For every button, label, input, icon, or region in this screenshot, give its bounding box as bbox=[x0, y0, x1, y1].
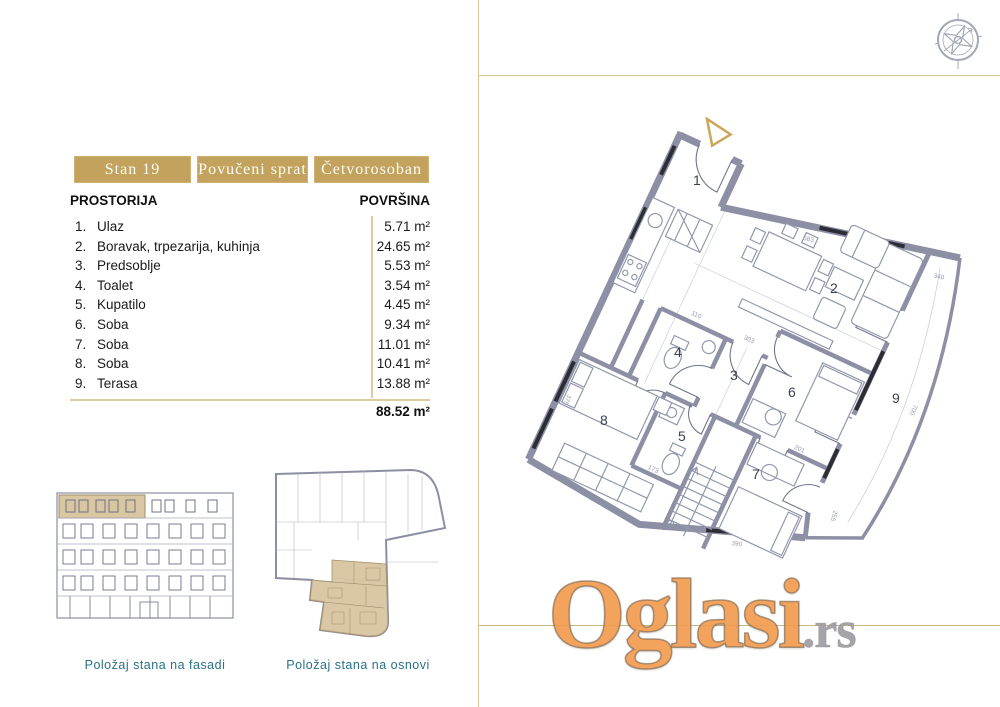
top-gold-line bbox=[479, 75, 1000, 76]
watermark-tld-text: .rs bbox=[802, 602, 855, 659]
floor-plan-rotated-group: 583 340 700 303 110 173 201 390 255 375 bbox=[523, 111, 1000, 575]
table-row: 1. Ulaz 5.71 m² bbox=[70, 217, 430, 237]
table-row: 5. Kupatilo 4.45 m² bbox=[70, 295, 430, 315]
room-number-label: 2 bbox=[830, 280, 838, 296]
table-row: 9. Terasa 13.88 m² bbox=[70, 374, 430, 394]
badge-apartment-number: Stan 19 bbox=[74, 156, 191, 183]
room-table: 1. Ulaz 5.71 m² 2. Boravak, trpezarija, … bbox=[70, 217, 430, 393]
facade-apartment-highlight bbox=[59, 495, 145, 518]
floor-plan: 583 340 700 303 110 173 201 390 255 375 … bbox=[480, 85, 1000, 575]
table-total-line bbox=[70, 399, 430, 401]
room-number-label: 1 bbox=[693, 172, 701, 188]
room-number-label: 6 bbox=[788, 384, 796, 400]
column-header-room: PROSTORIJA bbox=[70, 193, 158, 208]
facade-caption: Položaj stana na fasadi bbox=[50, 658, 260, 672]
table-row: 3. Predsoblje 5.53 m² bbox=[70, 256, 430, 276]
table-row: 2. Boravak, trpezarija, kuhinja 24.65 m² bbox=[70, 237, 430, 257]
table-row: 4. Toalet 3.54 m² bbox=[70, 276, 430, 296]
flyer-page: Stan 19 Povučeni sprat Četvorosoban PROS… bbox=[0, 0, 1000, 707]
room-number-label: 9 bbox=[892, 390, 900, 406]
facade-drawing bbox=[48, 478, 243, 648]
room-number-label: 4 bbox=[674, 344, 682, 360]
vertical-divider bbox=[478, 0, 479, 707]
column-header-area: POVRŠINA bbox=[359, 193, 430, 208]
watermark-brand-text: Oglasi bbox=[548, 558, 802, 669]
watermark-logo: Oglasi.rs bbox=[548, 556, 856, 671]
room-number-label: 8 bbox=[600, 412, 608, 428]
table-row: 6. Soba 9.34 m² bbox=[70, 315, 430, 335]
table-row: 7. Soba 11.01 m² bbox=[70, 335, 430, 355]
room-number-label: 3 bbox=[730, 367, 738, 383]
inset-caption: Položaj stana na osnovi bbox=[258, 658, 458, 672]
position-inset-drawing bbox=[262, 462, 462, 652]
total-area: 88.52 m² bbox=[70, 404, 430, 419]
table-row: 8. Soba 10.41 m² bbox=[70, 354, 430, 374]
compass-icon bbox=[928, 10, 988, 72]
room-number-label: 7 bbox=[752, 466, 760, 482]
table-column-separator bbox=[371, 216, 373, 398]
badge-floor: Povučeni sprat bbox=[197, 156, 308, 183]
badge-apartment-type: Četvorosoban bbox=[314, 156, 429, 183]
room-number-label: 5 bbox=[678, 428, 686, 444]
table-header: PROSTORIJA POVRŠINA bbox=[70, 193, 430, 208]
svg-text:390: 390 bbox=[731, 540, 743, 548]
